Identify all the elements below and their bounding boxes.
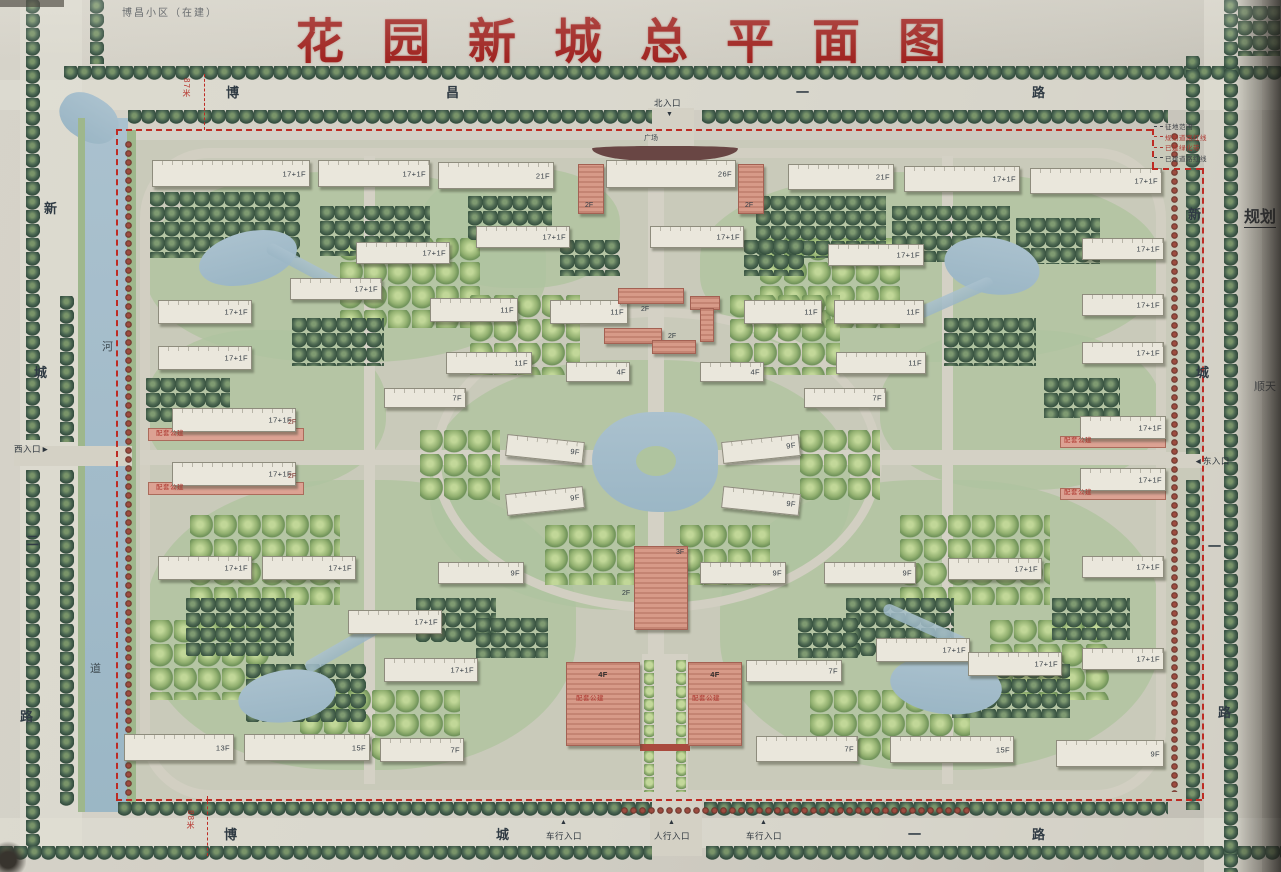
road-name-label: 新 [1188, 208, 1201, 221]
building-floor-label: 17+1F [1015, 565, 1038, 573]
entrance-label: 北入口 [654, 99, 681, 108]
road-name-label: 一 [908, 828, 921, 841]
legend-label: 已建道路红线 [1165, 153, 1207, 163]
building: 17+1F [476, 226, 570, 248]
building: 17+1F [1082, 648, 1164, 670]
building-floor-label: 11F [500, 306, 514, 314]
building-floor-label: 9F [902, 569, 912, 577]
building-balcony-ticks [291, 279, 381, 283]
building-balcony-ticks [825, 563, 915, 567]
building-floor-label: 17+1F [1139, 424, 1162, 432]
small-label: 2F [641, 306, 649, 313]
building-floor-label: 17+1F [1035, 660, 1058, 668]
site-plan-photo: 花园新城总平面图 博昌小区（在建） 征地范围规划道路红线已建绿化带已建道路红线 … [0, 0, 1281, 872]
legend-swatch [1154, 126, 1163, 127]
building-balcony-ticks [1081, 469, 1165, 473]
entrance-label: ◄东入口 [1194, 457, 1230, 466]
building [618, 288, 684, 304]
building-floor-label: 7F [450, 746, 460, 754]
building-floor-label: 4F [616, 368, 626, 376]
building-floor-label: 17+1F [717, 233, 740, 241]
building-floor-label: 15F [352, 744, 366, 752]
building: 11F [834, 300, 924, 324]
entrance-label: 西入口► [14, 445, 50, 454]
entrance-arrow: ▲ [668, 819, 675, 826]
building: 26F [606, 160, 736, 188]
building-balcony-ticks [607, 161, 735, 165]
building-balcony-ticks [385, 659, 477, 663]
public-facility-tag: 配套公建 [1064, 490, 1092, 497]
small-label: 2F [622, 590, 630, 597]
building-floor-label: 15F [996, 746, 1010, 754]
building-floor-label: 9F [786, 442, 796, 450]
building: 21F [788, 164, 894, 190]
building-balcony-ticks [477, 227, 569, 231]
building-balcony-ticks [159, 347, 251, 351]
road-name-label: 路 [20, 710, 33, 723]
building-floor-label: 11F [610, 308, 624, 316]
building-balcony-ticks [1081, 417, 1165, 421]
building-balcony-ticks [508, 435, 584, 447]
building: 7F [756, 736, 858, 762]
building-floor-label: 17+1F [225, 308, 248, 316]
building: 9F [700, 562, 786, 584]
building-balcony-ticks [1057, 741, 1163, 745]
small-label: 2F [288, 473, 296, 480]
building: 9F [721, 486, 801, 516]
building-floor-label: 9F [510, 569, 520, 577]
building: 7F [384, 388, 466, 408]
legend-row: 征地范围 [1154, 121, 1207, 132]
road-name-label: 二 [26, 534, 39, 547]
building: 11F [550, 300, 628, 324]
river-name-char: 道 [90, 664, 101, 675]
building: 17+1F [650, 226, 744, 248]
building-balcony-ticks [1083, 557, 1163, 561]
building: 17+1F [876, 638, 970, 662]
building-balcony-ticks [1083, 295, 1163, 299]
building-floor-label: 11F [804, 308, 818, 316]
building-balcony-ticks [877, 639, 969, 643]
building: 17+1F [158, 346, 252, 370]
boundary-line [1152, 168, 1202, 170]
building-floor-label: 17+1F [423, 249, 446, 257]
public-facility-tag: 配套公建 [156, 431, 184, 438]
building: 9F [438, 562, 524, 584]
building: 17+1F [1082, 342, 1164, 364]
building-floor-label: 17+1F [1137, 655, 1160, 663]
building-balcony-ticks [837, 353, 925, 357]
building: 4F [566, 662, 640, 746]
dimension-label: 87米 [182, 78, 190, 98]
building-floor-label: 9F [772, 569, 782, 577]
side-panel-text: 规划 [1244, 203, 1276, 228]
building: 21F [438, 162, 554, 189]
small-label: 2F [668, 333, 676, 340]
building: 11F [446, 352, 532, 374]
building-balcony-ticks [1083, 649, 1163, 653]
building-balcony-ticks [159, 301, 251, 305]
building-floor-label: 9F [570, 494, 580, 502]
building-floor-label: 17+1F [543, 233, 566, 241]
building-floor-label: 17+1F [403, 170, 426, 178]
building: 4F [700, 362, 764, 382]
building-balcony-ticks [447, 353, 531, 357]
road-name-label: 城 [34, 366, 47, 379]
building-balcony-ticks [905, 167, 1019, 171]
building: 11F [430, 298, 518, 322]
building-balcony-ticks [969, 653, 1061, 657]
building: 9F [721, 434, 801, 464]
building-balcony-ticks [159, 557, 251, 561]
building-balcony-ticks [349, 611, 441, 615]
building-balcony-ticks [1031, 169, 1161, 173]
legend-row: 已建道路红线 [1154, 153, 1207, 164]
building: 9F [505, 486, 585, 516]
building: 17+1F [904, 166, 1020, 192]
building-balcony-ticks [747, 661, 841, 665]
road-name-label: 一 [1208, 540, 1221, 553]
building-floor-label: 17+1F [1137, 245, 1160, 253]
building-floor-label: 11F [514, 359, 528, 367]
building: 17+1F [172, 408, 296, 432]
building-balcony-ticks [439, 563, 523, 567]
building: 4F [566, 362, 630, 382]
legend: 征地范围规划道路红线已建绿化带已建道路红线 [1154, 121, 1207, 163]
building-balcony-ticks [263, 557, 355, 561]
building: 17+1F [172, 462, 296, 486]
building-floor-label: 11F [908, 359, 922, 367]
legend-label: 规划道路红线 [1165, 132, 1207, 142]
boundary-line [116, 799, 1202, 801]
building: 17+1F [1082, 238, 1164, 260]
building-floor-label: 17+1F [897, 251, 920, 259]
building-floor-label: 17+1F [283, 170, 306, 178]
boundary-line [116, 129, 118, 799]
building-floor-label: 7F [452, 394, 462, 402]
building-balcony-ticks [745, 301, 821, 305]
building: 11F [836, 352, 926, 374]
building-balcony-ticks [829, 245, 923, 249]
building-floor-label: 17+1F [1135, 177, 1158, 185]
building: 17+1F [828, 244, 924, 266]
building-balcony-ticks [381, 739, 463, 743]
public-facility-tag: 配套公建 [156, 485, 184, 492]
public-facility-tag: 配套公建 [692, 696, 720, 703]
building-floor-label: 17+1F [451, 666, 474, 674]
plan-canvas: 花园新城总平面图 博昌小区（在建） 征地范围规划道路红线已建绿化带已建道路红线 … [0, 0, 1281, 872]
building-balcony-ticks [1083, 239, 1163, 243]
building-balcony-ticks [757, 737, 857, 741]
building: 17+1F [158, 556, 252, 580]
road-name-label: 路 [1218, 706, 1231, 719]
building-floor-label: 4F [750, 368, 760, 376]
building-floor-label: 7F [844, 745, 854, 753]
building-floor-label: 7F [872, 394, 882, 402]
road-name-label: 博 [224, 828, 237, 841]
river-name-char: 河 [102, 342, 113, 353]
entrance-arrow: ▲ [560, 819, 567, 826]
building-balcony-ticks [173, 409, 295, 413]
building: 11F [744, 300, 822, 324]
boundary-line [1202, 168, 1204, 799]
building-balcony-ticks [125, 735, 233, 739]
building-balcony-ticks [153, 161, 309, 165]
building-floor-label: 17+1F [1137, 563, 1160, 571]
adjacent-district-note: 博昌小区（在建） [122, 4, 218, 19]
building-floor-label: 21F [536, 172, 550, 180]
small-label: 2F [745, 202, 753, 209]
road-name-label: 一 [796, 86, 809, 99]
public-facility-tag: 配套公建 [1064, 438, 1092, 445]
building: 9F [1056, 740, 1164, 767]
page-title: 花园新城总平面图 [296, 2, 984, 72]
building-balcony-ticks [319, 161, 429, 165]
building-floor-label: 17+1F [415, 618, 438, 626]
building-floor-label: 17+1F [943, 646, 966, 654]
road-name-label: 城 [1196, 366, 1209, 379]
building-floor-label: 9F [570, 448, 580, 456]
building-balcony-ticks [949, 559, 1041, 563]
legend-label: 征地范围 [1165, 121, 1193, 131]
building: 17+1F [158, 300, 252, 324]
dimension-label: 88米 [186, 810, 194, 830]
building [700, 308, 714, 342]
building [634, 546, 688, 630]
building: 15F [244, 734, 370, 761]
building-floor-label: 17+1F [1139, 476, 1162, 484]
photo-corner-shadow [0, 840, 26, 872]
building-balcony-ticks [245, 735, 369, 739]
building: 4F [688, 662, 742, 746]
building: 17+1F [1030, 168, 1162, 194]
legend-row: 已建绿化带 [1154, 142, 1207, 153]
building: 7F [804, 388, 886, 408]
side-panel-text: 顺天 [1254, 378, 1276, 394]
legend-label: 已建绿化带 [1165, 142, 1200, 152]
building: 7F [746, 660, 842, 682]
building-floor-label: 4F [710, 671, 720, 679]
building: 17+1F [152, 160, 310, 187]
building: 9F [824, 562, 916, 584]
building: 17+1F [1082, 294, 1164, 316]
building-balcony-ticks [724, 487, 800, 499]
building-balcony-ticks [173, 463, 295, 467]
building-balcony-ticks [551, 301, 627, 305]
building: 17+1F [262, 556, 356, 580]
building: 17+1F [1080, 416, 1166, 439]
building-floor-label: 11F [906, 308, 920, 316]
building: 17+1F [356, 242, 450, 264]
small-label: 2F [288, 419, 296, 426]
road-name-label: 路 [1032, 828, 1045, 841]
entrance-label: 人行入口 [654, 832, 690, 841]
building: 17+1F [290, 278, 382, 300]
building-floor-label: 17+1F [225, 564, 248, 572]
legend-swatch [1154, 157, 1163, 158]
small-label: 2F [585, 202, 593, 209]
building: 9F [505, 434, 585, 464]
legend-swatch [1154, 136, 1163, 137]
building: 17+1F [348, 610, 442, 634]
road-name-label: 新 [44, 202, 57, 215]
photo-edge-shadow [0, 0, 64, 7]
legend-swatch [1154, 147, 1163, 148]
building: 17+1F [384, 658, 478, 682]
legend-row: 规划道路红线 [1154, 132, 1207, 143]
building-floor-label: 17+1F [329, 564, 352, 572]
building-floor-label: 17+1F [1137, 301, 1160, 309]
road-name-label: 昌 [446, 86, 459, 99]
building: 13F [124, 734, 234, 761]
building-balcony-ticks [1083, 343, 1163, 347]
building-balcony-ticks [357, 243, 449, 247]
building-floor-label: 9F [1150, 750, 1160, 758]
road-name-label: 路 [1032, 86, 1045, 99]
building-floor-label: 4F [598, 671, 608, 679]
building: 17+1F [1080, 468, 1166, 491]
building: 17+1F [1082, 556, 1164, 578]
entrance-arrow: ▼ [666, 111, 673, 118]
building-floor-label: 21F [876, 173, 890, 181]
building-floor-label: 17+1F [993, 175, 1016, 183]
road-name-label: 城 [496, 828, 509, 841]
small-label: 广场 [644, 135, 658, 142]
building-balcony-ticks [891, 737, 1013, 741]
building-balcony-ticks [835, 301, 923, 305]
building-balcony-ticks [701, 563, 785, 567]
building-balcony-ticks [651, 227, 743, 231]
boundary-line [116, 129, 1152, 131]
building-floor-label: 9F [786, 500, 796, 508]
building-floor-label: 17+1F [1137, 349, 1160, 357]
building [652, 340, 696, 354]
building: 15F [890, 736, 1014, 763]
building-floor-label: 17+1F [225, 354, 248, 362]
small-label: 3F [676, 549, 684, 556]
building-balcony-ticks [789, 165, 893, 169]
road-name-label: 博 [226, 86, 239, 99]
entrance-arrow: ▲ [760, 819, 767, 826]
building-floor-label: 26F [718, 170, 732, 178]
building-balcony-ticks [439, 163, 553, 167]
entrance-label: 车行入口 [746, 832, 782, 841]
building-balcony-ticks [431, 299, 517, 303]
building: 17+1F [968, 652, 1062, 676]
building-floor-label: 13F [216, 744, 230, 752]
building: 17+1F [948, 558, 1042, 580]
building: 17+1F [318, 160, 430, 187]
building-floor-label: 7F [828, 667, 838, 675]
entrance-label: 车行入口 [546, 832, 582, 841]
building-floor-label: 17+1F [355, 285, 378, 293]
dimension-line [207, 796, 208, 856]
public-facility-tag: 配套公建 [576, 696, 604, 703]
dimension-line [204, 74, 205, 130]
building: 7F [380, 738, 464, 762]
